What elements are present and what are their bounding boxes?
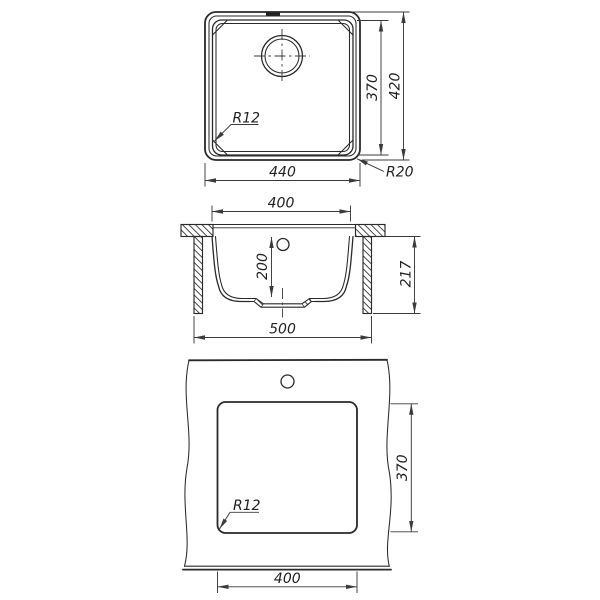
dim-label-section-height: 217 <box>399 261 415 288</box>
dimension-opening-width: 400 <box>212 196 351 222</box>
overflow-hole <box>277 239 289 251</box>
dimension-section-height: 217 <box>373 237 421 314</box>
countertop-section-left <box>181 225 213 237</box>
sink-wall-section-left <box>194 237 203 314</box>
countertop-break-edge-right <box>387 360 391 566</box>
dim-label-bowl-height: 370 <box>365 74 381 101</box>
cutout-view: R12 370 400 <box>183 360 418 593</box>
top-view: 440 370 420 R12 R20 <box>205 12 414 187</box>
dim-label-bowl-radius: R12 <box>233 111 261 127</box>
dimension-bowl-depth: 200 <box>255 237 272 297</box>
dimension-section-overall-width: 500 <box>194 316 372 344</box>
dimension-bowl-height: 370 <box>357 21 389 156</box>
bowl-outer-edge <box>213 20 354 155</box>
dim-label-section-overall-width: 500 <box>269 322 296 338</box>
leader-cutout-radius: R12 <box>220 498 261 529</box>
dim-label-cutout-width: 400 <box>274 571 301 587</box>
dimension-top-width: 440 <box>205 163 360 187</box>
dim-label-top-width: 440 <box>269 165 296 181</box>
sink-technical-drawing: 440 370 420 R12 R20 <box>0 0 600 600</box>
dim-label-opening-width: 400 <box>268 196 295 212</box>
countertop-break-edge-left <box>185 360 190 566</box>
dimension-cutout-height: 370 <box>391 404 419 532</box>
dim-label-cutout-height: 370 <box>395 454 411 481</box>
dim-label-cutout-radius: R12 <box>233 498 261 514</box>
section-view: 400 200 217 500 <box>181 196 421 344</box>
faucet-hole <box>281 375 294 388</box>
dim-label-outer-radius: R20 <box>386 165 414 181</box>
leader-outer-radius: R20 <box>357 159 414 181</box>
countertop-top-edge <box>189 360 387 361</box>
drain-recess <box>251 288 315 318</box>
leader-bowl-radius: R12 <box>215 111 261 142</box>
rim-center-mark <box>266 12 280 15</box>
sink-wall-section-right <box>363 237 372 314</box>
dim-label-bowl-depth: 200 <box>255 253 271 280</box>
sink-outer-edge <box>205 12 360 160</box>
dim-label-top-overall-height: 420 <box>388 73 404 100</box>
dimension-cutout-width: 400 <box>218 571 358 593</box>
countertop-section-right <box>356 225 386 237</box>
bowl-inner-edge <box>216 24 350 152</box>
sink-rim-edge <box>209 16 356 156</box>
